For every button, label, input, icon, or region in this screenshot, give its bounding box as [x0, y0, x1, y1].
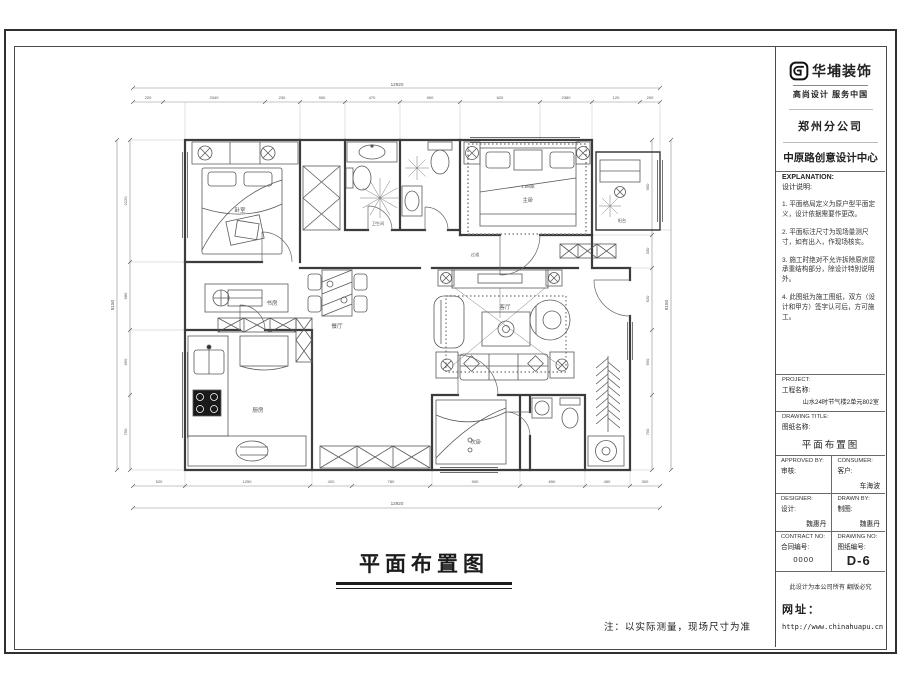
contract-cell: CONTRACT NO: 合同编号: 0000 — [776, 532, 832, 571]
approved-label-en: APPROVED BY: — [781, 458, 826, 464]
company-name: 华埔装饰 — [812, 61, 872, 81]
website-section: 此设计为本公司所有 翻版必究 网址： http://www.chinahuapu… — [776, 572, 885, 647]
svg-text:780: 780 — [388, 479, 395, 484]
svg-text:120: 120 — [613, 95, 620, 100]
svg-text:餐厅: 餐厅 — [331, 322, 343, 330]
consumer-cell: CONSUMER: 客户: 车海波 — [832, 456, 885, 493]
svg-text:750: 750 — [123, 428, 128, 435]
project-label-en: PROJECT: — [782, 377, 879, 383]
title-block: 华埔装饰 高尚设计 服务中国 郑州分公司 中原路创意设计中心 EXPLANATI… — [775, 47, 885, 647]
project-section: PROJECT: 工程名称: 山水24时节气楼2单元802室 — [776, 375, 885, 412]
svg-text:3340: 3340 — [210, 95, 220, 100]
designer-name: 魏惠丹 — [781, 518, 826, 528]
svg-text:520: 520 — [156, 479, 163, 484]
svg-text:阳台: 阳台 — [618, 217, 626, 224]
website-url: http://www.chinahuapu.cn — [782, 623, 879, 631]
design-note: 4. 此图纸为施工图纸，双方（设计和甲方）签字认可后，方可施工。 — [782, 293, 879, 323]
consumer-label-cn: 客户: — [837, 465, 880, 475]
chair — [354, 274, 367, 290]
drawn-by-name: 魏惠丹 — [837, 518, 880, 528]
drawing-title-label-cn: 图纸名称: — [782, 421, 879, 431]
svg-text:次卧: 次卧 — [470, 438, 482, 446]
contract-label-cn: 合同编号: — [781, 541, 826, 551]
chaise — [434, 296, 464, 348]
drawing-title-section: DRAWING TITLE: 图纸名称: 平面布置图 — [776, 412, 885, 456]
drawing-no-label-en: DRAWING NO: — [837, 534, 880, 540]
svg-text:厨房: 厨房 — [252, 406, 264, 414]
title-underline-thin — [336, 588, 512, 589]
svg-text:900: 900 — [472, 479, 479, 484]
walls — [185, 140, 660, 470]
toilet-icon — [560, 398, 580, 405]
svg-text:8150: 8150 — [110, 299, 115, 310]
explanation-heading-cn: 设计说明: — [782, 182, 879, 192]
svg-text:620: 620 — [497, 95, 504, 100]
toilet-icon — [428, 142, 452, 150]
explanation-heading-en: EXPLANATION: — [782, 174, 879, 181]
svg-text:12920: 12920 — [391, 501, 404, 506]
svg-text:750: 750 — [645, 428, 650, 435]
approved-by-cell: APPROVED BY: 审核: — [776, 456, 832, 493]
stove — [193, 390, 221, 416]
svg-text:过道: 过道 — [471, 251, 480, 258]
huapu-logo-icon — [789, 61, 809, 81]
shoe-cabinet — [560, 244, 616, 258]
approved-consumer-row: APPROVED BY: 审核: CONSUMER: 客户: 车海波 — [776, 456, 885, 494]
design-note: 2. 平面标注尺寸为现场量测尺寸，如有出入，作现场核实。 — [782, 228, 879, 248]
approved-label-cn: 审核: — [781, 465, 826, 475]
svg-text:650: 650 — [123, 358, 128, 365]
svg-text:900: 900 — [319, 95, 326, 100]
svg-text:卧室: 卧室 — [234, 206, 246, 214]
company-logo-row: 华埔装饰 — [789, 61, 872, 81]
balcony-annex — [600, 160, 640, 198]
wardrobe — [192, 142, 298, 164]
svg-text:620: 620 — [645, 295, 650, 302]
designer-label-en: DESIGNER: — [781, 496, 826, 502]
branch-name: 郑州分公司 — [789, 109, 873, 134]
svg-text:230: 230 — [279, 95, 286, 100]
drawing-title-value: 平面布置图 — [782, 437, 879, 451]
plan-title: 平面布置图 — [336, 548, 512, 589]
drawing-number: D-6 — [837, 553, 880, 568]
svg-text:650: 650 — [645, 358, 650, 365]
room-labels: 卧室 主卧 1.8M床 卫生间 过道 客厅 餐厅 书房 厨房 次卧 阳台 — [234, 183, 626, 446]
svg-text:1250: 1250 — [243, 479, 253, 484]
consumer-label-en: CONSUMER: — [837, 458, 880, 464]
svg-text:450: 450 — [604, 479, 611, 484]
drawing-no-cell: DRAWING NO: 图纸编号: D-6 — [832, 532, 885, 571]
dining-table — [322, 270, 352, 316]
svg-text:书房: 书房 — [266, 299, 278, 307]
design-note: 1. 平面格局定义为原户型平面定义，设计依据需要作更改。 — [782, 200, 879, 220]
bedroom-1 — [192, 142, 298, 254]
drawn-label-cn: 制图: — [837, 503, 880, 513]
coffee-table — [482, 312, 530, 346]
drawn-label-en: DRAWN BY: — [837, 496, 880, 502]
svg-text:420: 420 — [328, 479, 335, 484]
company-slogan: 高尚设计 服务中国 — [793, 85, 868, 100]
counter — [188, 436, 306, 466]
contract-number: 0000 — [781, 555, 826, 564]
contract-drawingno-row: CONTRACT NO: 合同编号: 0000 DRAWING NO: 图纸编号… — [776, 532, 885, 572]
svg-text:1.8M床: 1.8M床 — [521, 183, 535, 190]
svg-text:卫生间: 卫生间 — [372, 220, 385, 227]
contract-label-en: CONTRACT NO: — [781, 534, 826, 540]
windows — [183, 138, 663, 473]
svg-text:470: 470 — [369, 95, 376, 100]
svg-text:2220: 2220 — [123, 196, 128, 206]
svg-text:客厅: 客厅 — [499, 303, 511, 311]
tall-cabinet — [296, 318, 312, 362]
svg-text:300: 300 — [642, 479, 649, 484]
designer-cell: DESIGNER: 设计: 魏惠丹 — [776, 494, 832, 531]
copyright-notice: 此设计为本公司所有 翻版必究 — [782, 582, 879, 591]
closet-column — [303, 166, 340, 230]
design-note: 3. 施工时绝对不允许拆除原房屋承重结构部分，除设计特别说明外。 — [782, 256, 879, 286]
svg-text:220: 220 — [145, 95, 152, 100]
title-underline-thick — [336, 582, 512, 585]
bathroom-2 — [402, 142, 452, 216]
plan-footnote: 注：以实际测量，现场尺寸为准 — [604, 619, 751, 633]
designer-drawn-row: DESIGNER: 设计: 魏惠丹 DRAWN BY: 制图: 魏惠丹 — [776, 494, 885, 532]
drawn-by-cell: DRAWN BY: 制图: 魏惠丹 — [832, 494, 885, 531]
consumer-name: 车海波 — [837, 480, 880, 490]
toilet-icon — [346, 168, 353, 188]
bed — [436, 400, 506, 464]
chair — [308, 296, 321, 312]
svg-text:12920: 12920 — [391, 82, 404, 87]
design-center-name: 中原路创意设计中心 — [783, 142, 878, 171]
fridge — [240, 336, 288, 366]
svg-text:330: 330 — [645, 247, 650, 254]
drawing-title-label-en: DRAWING TITLE: — [782, 414, 879, 420]
kitchen — [188, 336, 306, 466]
counter — [188, 336, 228, 436]
designer-label-cn: 设计: — [781, 503, 826, 513]
svg-text:8150: 8150 — [664, 299, 669, 310]
svg-text:650: 650 — [549, 479, 556, 484]
chair — [354, 296, 367, 312]
project-name-value: 山水24时节气楼2单元802室 — [782, 397, 879, 406]
plan-title-text: 平面布置图 — [336, 548, 512, 578]
svg-text:主卧: 主卧 — [522, 196, 534, 204]
svg-text:2380: 2380 — [562, 95, 572, 100]
coat-rack — [596, 356, 620, 432]
bedroom-2 — [320, 400, 506, 468]
svg-text:680: 680 — [123, 292, 128, 299]
drawing-no-label-cn: 图纸编号: — [837, 541, 880, 551]
explanation-section: EXPLANATION: 设计说明: 1. 平面格局定义为原户型平面定义，设计依… — [776, 172, 885, 375]
svg-text:900: 900 — [427, 95, 434, 100]
basin — [236, 441, 268, 461]
project-label-cn: 工程名称: — [782, 384, 879, 394]
dining-area — [308, 270, 367, 316]
chair — [308, 274, 321, 290]
svg-text:950: 950 — [645, 183, 650, 190]
website-label: 网址： — [782, 601, 879, 617]
svg-text:200: 200 — [647, 95, 654, 100]
company-header: 华埔装饰 高尚设计 服务中国 郑州分公司 中原路创意设计中心 — [776, 47, 885, 172]
